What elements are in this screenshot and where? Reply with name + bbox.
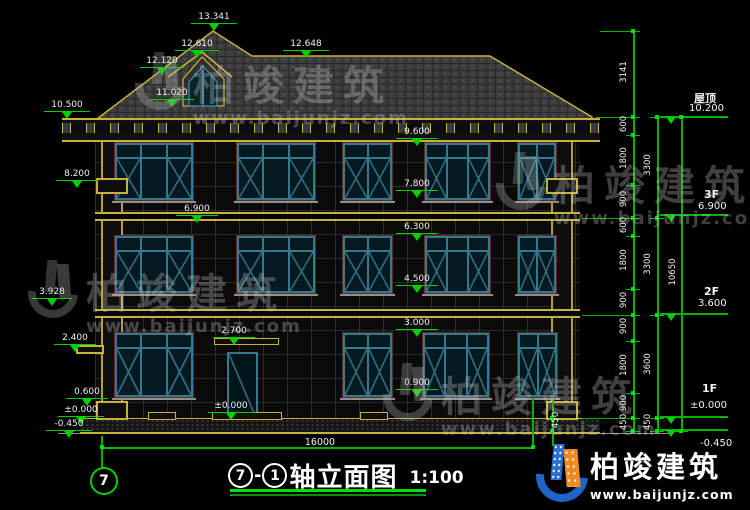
dim-1800b: 1800	[619, 242, 629, 278]
level-triangle	[666, 417, 676, 424]
level-landing: 3.928	[32, 287, 72, 306]
level-w1-sill: 0.900	[396, 378, 438, 397]
dim-line	[600, 31, 633, 32]
marker-1f-elev: ±0.000	[690, 400, 727, 411]
dim-tick	[631, 133, 635, 137]
dim-line	[532, 398, 534, 448]
floor3-band	[95, 212, 580, 221]
level-dormer-base: 11.020	[150, 88, 194, 107]
dim-tick	[631, 287, 635, 291]
level-roof-left: 12.120	[140, 56, 184, 75]
level-w1-head: 3.000	[396, 318, 438, 337]
dim-line	[681, 117, 683, 431]
level-ridge: 12.648	[283, 39, 329, 58]
dim-tick	[631, 339, 635, 343]
dim-tick	[655, 313, 659, 317]
window	[343, 143, 392, 200]
right-capital	[546, 178, 578, 194]
level-triangle	[666, 215, 676, 222]
window	[237, 236, 315, 293]
dim-tick	[631, 29, 635, 33]
site-logo: 柏竣建筑 www.baijunjz.com	[536, 444, 734, 504]
dim-tick	[631, 429, 635, 433]
marker-3f-elev: 6.900	[698, 201, 727, 212]
dim-1800: 1800	[619, 140, 629, 176]
window	[343, 236, 392, 293]
level-triangle	[666, 314, 676, 321]
dim-line	[633, 31, 635, 431]
left-capital	[96, 178, 128, 194]
level-w2-head: 6.300	[396, 222, 438, 241]
marker-2f-elev: 3.600	[698, 298, 727, 309]
dim-tick	[631, 115, 635, 119]
window	[115, 236, 193, 293]
plinth-band	[80, 418, 600, 434]
dim-tick	[631, 234, 635, 238]
dim-tick	[631, 416, 635, 420]
cad-elevation-canvas: 13.341 12.610 12.120 11.020 12.648 10.50…	[0, 0, 750, 510]
level-porch: 2.700	[213, 326, 255, 345]
dim-line	[101, 436, 103, 468]
dim-line	[657, 117, 659, 431]
dim-1800c: 1800	[619, 347, 629, 383]
dim-900c: 900	[619, 308, 629, 344]
level-floor3: 6.900	[176, 204, 218, 223]
level-ledge: 2.400	[54, 333, 96, 352]
dim-tick	[655, 416, 659, 420]
dim-10650: 10650	[668, 254, 678, 290]
window	[237, 143, 315, 200]
title-underline	[230, 489, 426, 492]
dim-3141: 3141	[619, 54, 629, 90]
logo-url: www.baijunjz.com	[590, 487, 734, 502]
overall-width-dim: 16000	[280, 437, 360, 448]
step	[148, 412, 176, 420]
eave-cornice	[62, 118, 600, 142]
axis-bubble-7: 7	[90, 467, 118, 495]
level-capital: 8.200	[56, 169, 98, 188]
dim-3600: 3600	[643, 346, 653, 382]
marker-roof-elev: 10.200	[689, 103, 724, 114]
step	[360, 412, 388, 420]
title-underline-2	[230, 494, 426, 496]
window	[518, 333, 557, 397]
marker-3f-name: 3F	[704, 188, 719, 201]
level-w3-sill: 7.800	[396, 179, 438, 198]
dim-600: 600	[619, 106, 629, 142]
marker-1f-name: 1F	[702, 382, 717, 395]
dim-tick	[531, 445, 535, 449]
level-triangle	[666, 430, 676, 437]
dim-tick	[655, 216, 659, 220]
dim-3300b: 3300	[643, 246, 653, 282]
logo-icon	[536, 444, 586, 504]
dim-tick	[100, 445, 104, 449]
floor2-band	[95, 309, 580, 318]
window	[518, 236, 556, 293]
level-eave: 10.500	[44, 100, 90, 119]
dim-tick	[679, 115, 683, 119]
marker-2f-name: 2F	[704, 285, 719, 298]
dim-3300: 3300	[643, 147, 653, 183]
level-peak: 13.341	[191, 12, 237, 31]
logo-brand: 柏竣建筑	[590, 444, 734, 486]
dim-tick	[631, 216, 635, 220]
level-triangle	[666, 117, 676, 124]
dim-tick	[655, 429, 659, 433]
title-axis-end: 1	[262, 463, 287, 488]
title-axis-start: 7	[228, 463, 253, 488]
level-w3-head: 9.600	[396, 127, 438, 146]
dim-tick	[631, 183, 635, 187]
dim-600b: 600	[619, 207, 629, 243]
dim-tick	[631, 313, 635, 317]
level-plinth: 0.600	[66, 387, 108, 406]
window	[115, 333, 193, 397]
title-dash: -	[254, 465, 261, 486]
dim-450: 450	[619, 404, 629, 440]
level-minus-left: -0.450	[46, 419, 92, 438]
window	[343, 333, 392, 397]
dim-tick	[679, 429, 683, 433]
level-w2-sill: 4.500	[396, 274, 438, 293]
dim-tick	[631, 391, 635, 395]
title-scale: 1:100	[410, 468, 464, 488]
level-door-zero: ±0.000	[208, 401, 254, 420]
dim-edge-450: 450	[551, 402, 561, 438]
dim-450b: 450	[643, 404, 653, 440]
dim-tick	[655, 115, 659, 119]
